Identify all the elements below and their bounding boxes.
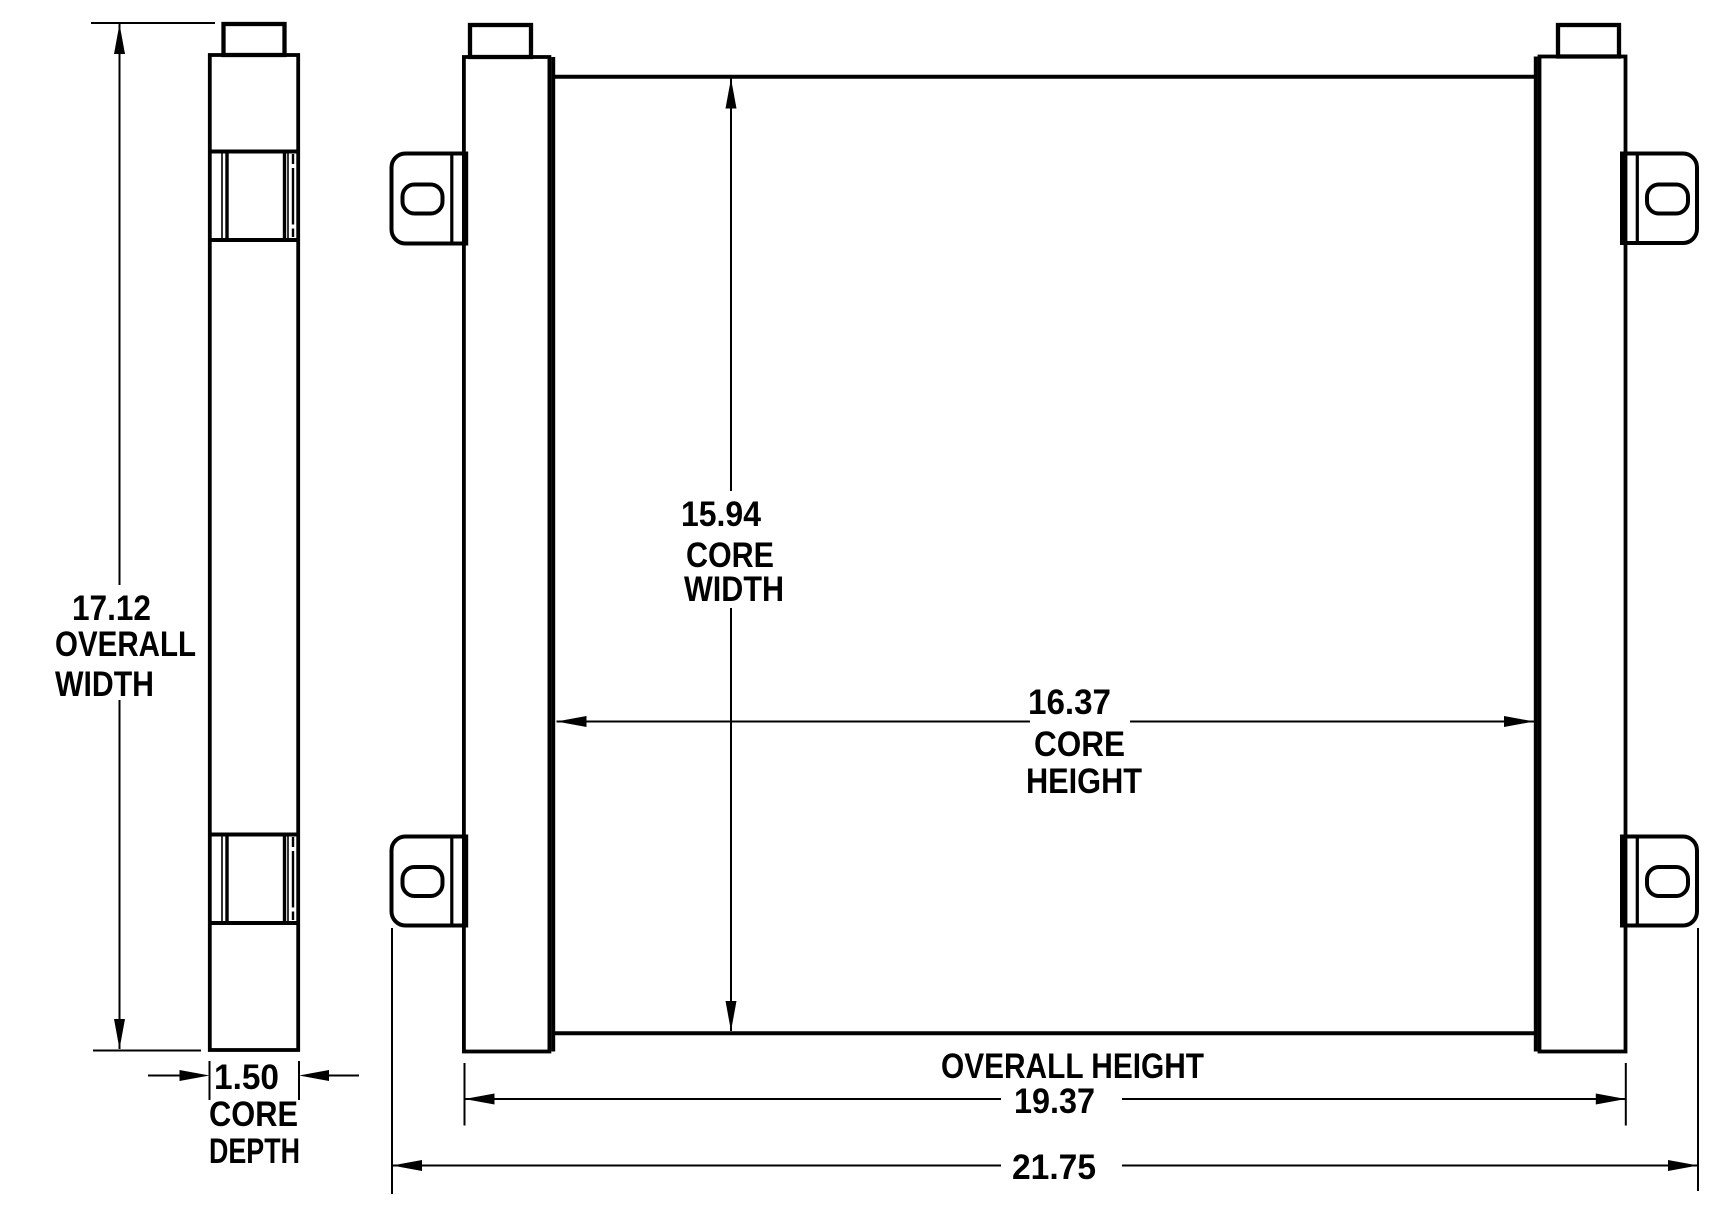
svg-text:21.75: 21.75	[1012, 1148, 1096, 1187]
svg-text:OVERALL: OVERALL	[55, 625, 196, 664]
svg-text:CORE: CORE	[209, 1095, 298, 1134]
svg-text:17.12: 17.12	[72, 589, 151, 628]
svg-text:19.37: 19.37	[1014, 1082, 1095, 1121]
svg-text:WIDTH: WIDTH	[684, 570, 784, 609]
svg-text:CORE: CORE	[1034, 725, 1125, 764]
svg-text:WIDTH: WIDTH	[55, 665, 154, 704]
svg-text:DEPTH: DEPTH	[209, 1132, 300, 1171]
svg-text:16.37: 16.37	[1028, 683, 1111, 722]
svg-text:15.94: 15.94	[681, 495, 761, 534]
svg-text:OVERALL HEIGHT: OVERALL HEIGHT	[941, 1047, 1204, 1086]
svg-text:HEIGHT: HEIGHT	[1026, 762, 1142, 801]
svg-text:1.50: 1.50	[214, 1058, 279, 1097]
